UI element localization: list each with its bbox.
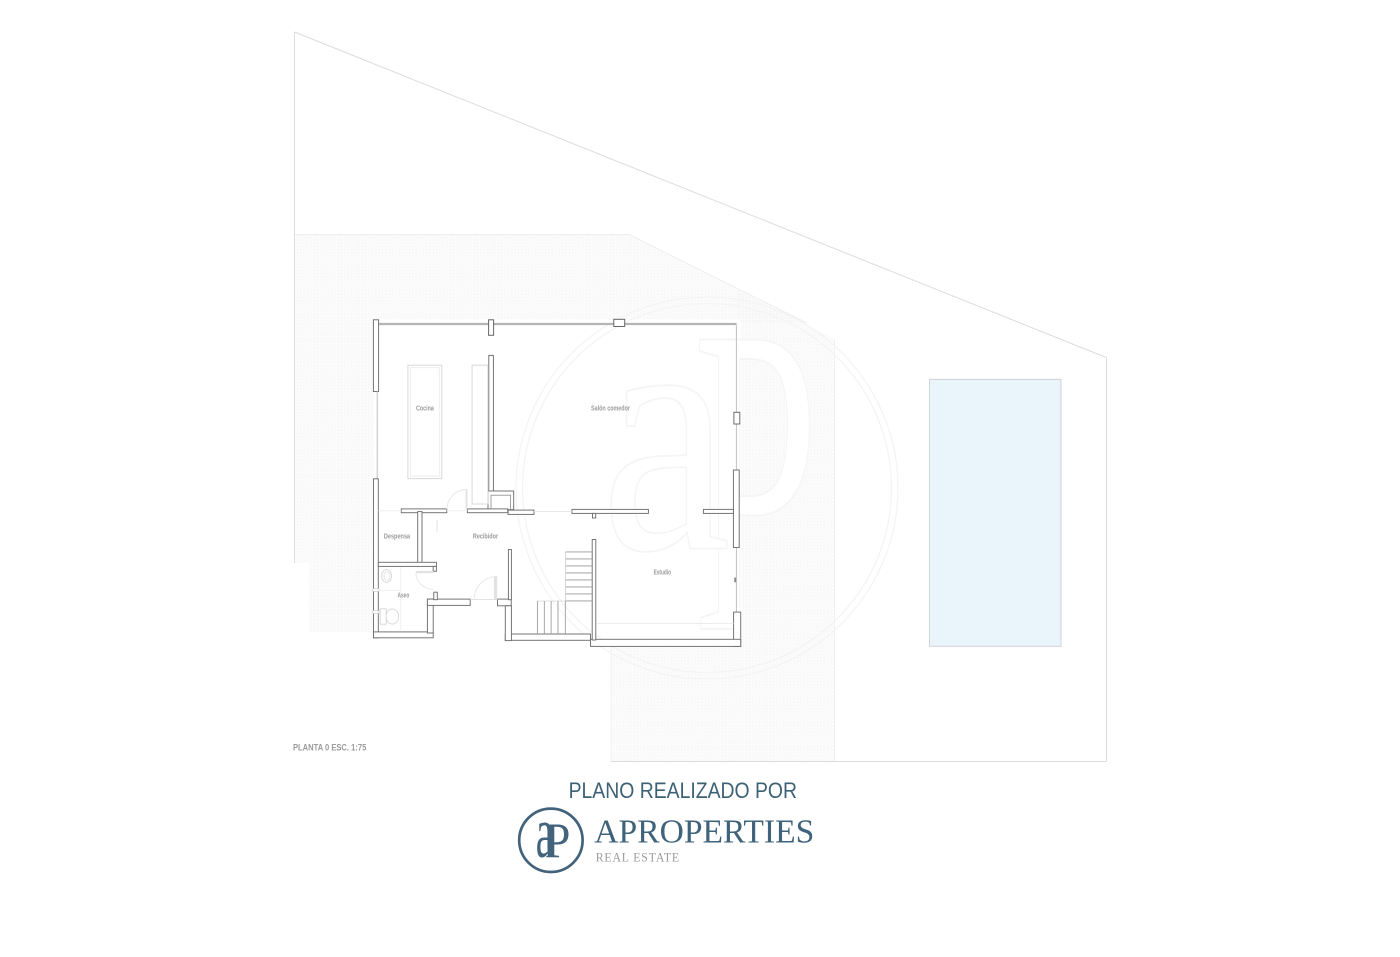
svg-text:REAL ESTATE: REAL ESTATE xyxy=(596,849,680,864)
svg-text:Despensa: Despensa xyxy=(384,533,410,540)
svg-text:Aseo: Aseo xyxy=(398,592,410,599)
svg-text:Cocina: Cocina xyxy=(416,405,434,412)
svg-text:Salón comedor: Salón comedor xyxy=(591,406,630,413)
svg-text:PLANO REALIZADO POR: PLANO REALIZADO POR xyxy=(569,778,797,803)
svg-text:PLANTA 0 ESC. 1:75: PLANTA 0 ESC. 1:75 xyxy=(293,742,366,753)
svg-text:Recibidor: Recibidor xyxy=(473,533,498,540)
svg-text:a: a xyxy=(536,793,554,874)
svg-text:APROPERTIES: APROPERTIES xyxy=(594,814,814,851)
svg-text:Estudio: Estudio xyxy=(654,570,671,577)
